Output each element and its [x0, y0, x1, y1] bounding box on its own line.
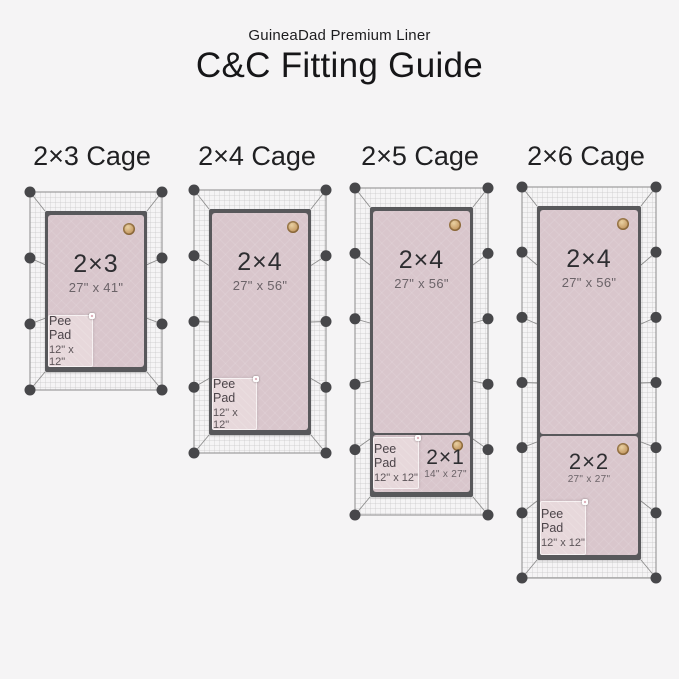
cage-size-heading-2x4: 2×4 Cage [172, 141, 342, 172]
liner-dimensions: 14" x 27" [424, 469, 467, 480]
liner-dimensions: 27" x 56" [373, 276, 470, 291]
brand-subtitle: GuineaDad Premium Liner [0, 27, 679, 44]
cage-2x4: 2×4 27" x 56" Pee Pad 12" x 12" [194, 190, 326, 453]
liner-2x1-row: 2×1 14" x 27" Pee Pad 12" x 12" [373, 435, 470, 492]
cage-frame: 2×3 27" x 41" Pee Pad 12" x 12" [45, 211, 147, 372]
liner-dimensions: 27" x 56" [540, 275, 638, 290]
liner-2x2: 2×2 27" x 27" Pee Pad 12" x 12" [540, 436, 638, 555]
liner-2x4: 2×4 27" x 56" Pee Pad 12" x 12" [212, 213, 308, 430]
pee-pad: Pee Pad 12" x 12" [540, 501, 586, 555]
liner-2x4-main: 2×4 27" x 56" [373, 211, 470, 433]
cage-size-heading-2x6: 2×6 Cage [501, 141, 671, 172]
cage-frame: 2×4 27" x 56" 2×2 27" x 27" Pee Pad 12" … [537, 206, 641, 560]
pee-pad-label: Pee Pad [213, 377, 256, 405]
liner-dimensions: 27" x 27" [540, 474, 638, 485]
liner-dimensions: 27" x 56" [212, 278, 308, 293]
guineadad-logo-badge [617, 218, 629, 230]
liner-size: 2×3 [48, 251, 144, 277]
liner-2x3: 2×3 27" x 41" Pee Pad 12" x 12" [48, 215, 144, 367]
pee-pad: Pee Pad 12" x 12" [373, 437, 419, 489]
liner-size: 2×4 [373, 247, 470, 273]
page-title: C&C Fitting Guide [0, 46, 679, 86]
cage-size-heading-2x5: 2×5 Cage [335, 141, 505, 172]
guineadad-logo-badge [617, 443, 629, 455]
liner-dimensions: 27" x 41" [48, 280, 144, 295]
liner-size: 2×4 [540, 246, 638, 272]
guineadad-logo-badge [287, 221, 299, 233]
cage-2x3: 2×3 27" x 41" Pee Pad 12" x 12" [30, 192, 162, 390]
fitting-guide-infographic: GuineaDad Premium Liner C&C Fitting Guid… [0, 0, 679, 679]
guineadad-logo-badge [449, 219, 461, 231]
liner-size: 2×1 [426, 447, 465, 469]
pee-pad-dimensions: 12" x 12" [374, 472, 418, 484]
cage-size-heading-2x3: 2×3 Cage [7, 141, 177, 172]
cage-2x5: 2×4 27" x 56" 2×1 14" x 27" Pee Pad 12" … [355, 188, 488, 515]
pee-pad-label: Pee Pad [49, 314, 92, 342]
pee-pad-dimensions: 12" x 12" [213, 407, 256, 431]
cage-frame: 2×4 27" x 56" 2×1 14" x 27" Pee Pad 12" … [370, 207, 473, 497]
snap-button [253, 376, 259, 382]
guineadad-logo-badge [123, 223, 135, 235]
snap-button [89, 313, 95, 319]
pee-pad-label: Pee Pad [374, 442, 418, 470]
liner-label: 2×1 14" x 27" [421, 435, 470, 492]
liner-size: 2×4 [212, 249, 308, 275]
snap-button [415, 435, 421, 441]
cage-2x6: 2×4 27" x 56" 2×2 27" x 27" Pee Pad 12" … [522, 187, 656, 578]
cage-frame: 2×4 27" x 56" Pee Pad 12" x 12" [209, 209, 311, 435]
pee-pad-label: Pee Pad [541, 507, 585, 535]
pee-pad-dimensions: 12" x 12" [541, 537, 585, 549]
pee-pad: Pee Pad 12" x 12" [48, 315, 93, 367]
liner-2x4-main: 2×4 27" x 56" [540, 210, 638, 434]
pee-pad: Pee Pad 12" x 12" [212, 378, 257, 430]
snap-button [582, 499, 588, 505]
pee-pad-dimensions: 12" x 12" [49, 344, 92, 368]
